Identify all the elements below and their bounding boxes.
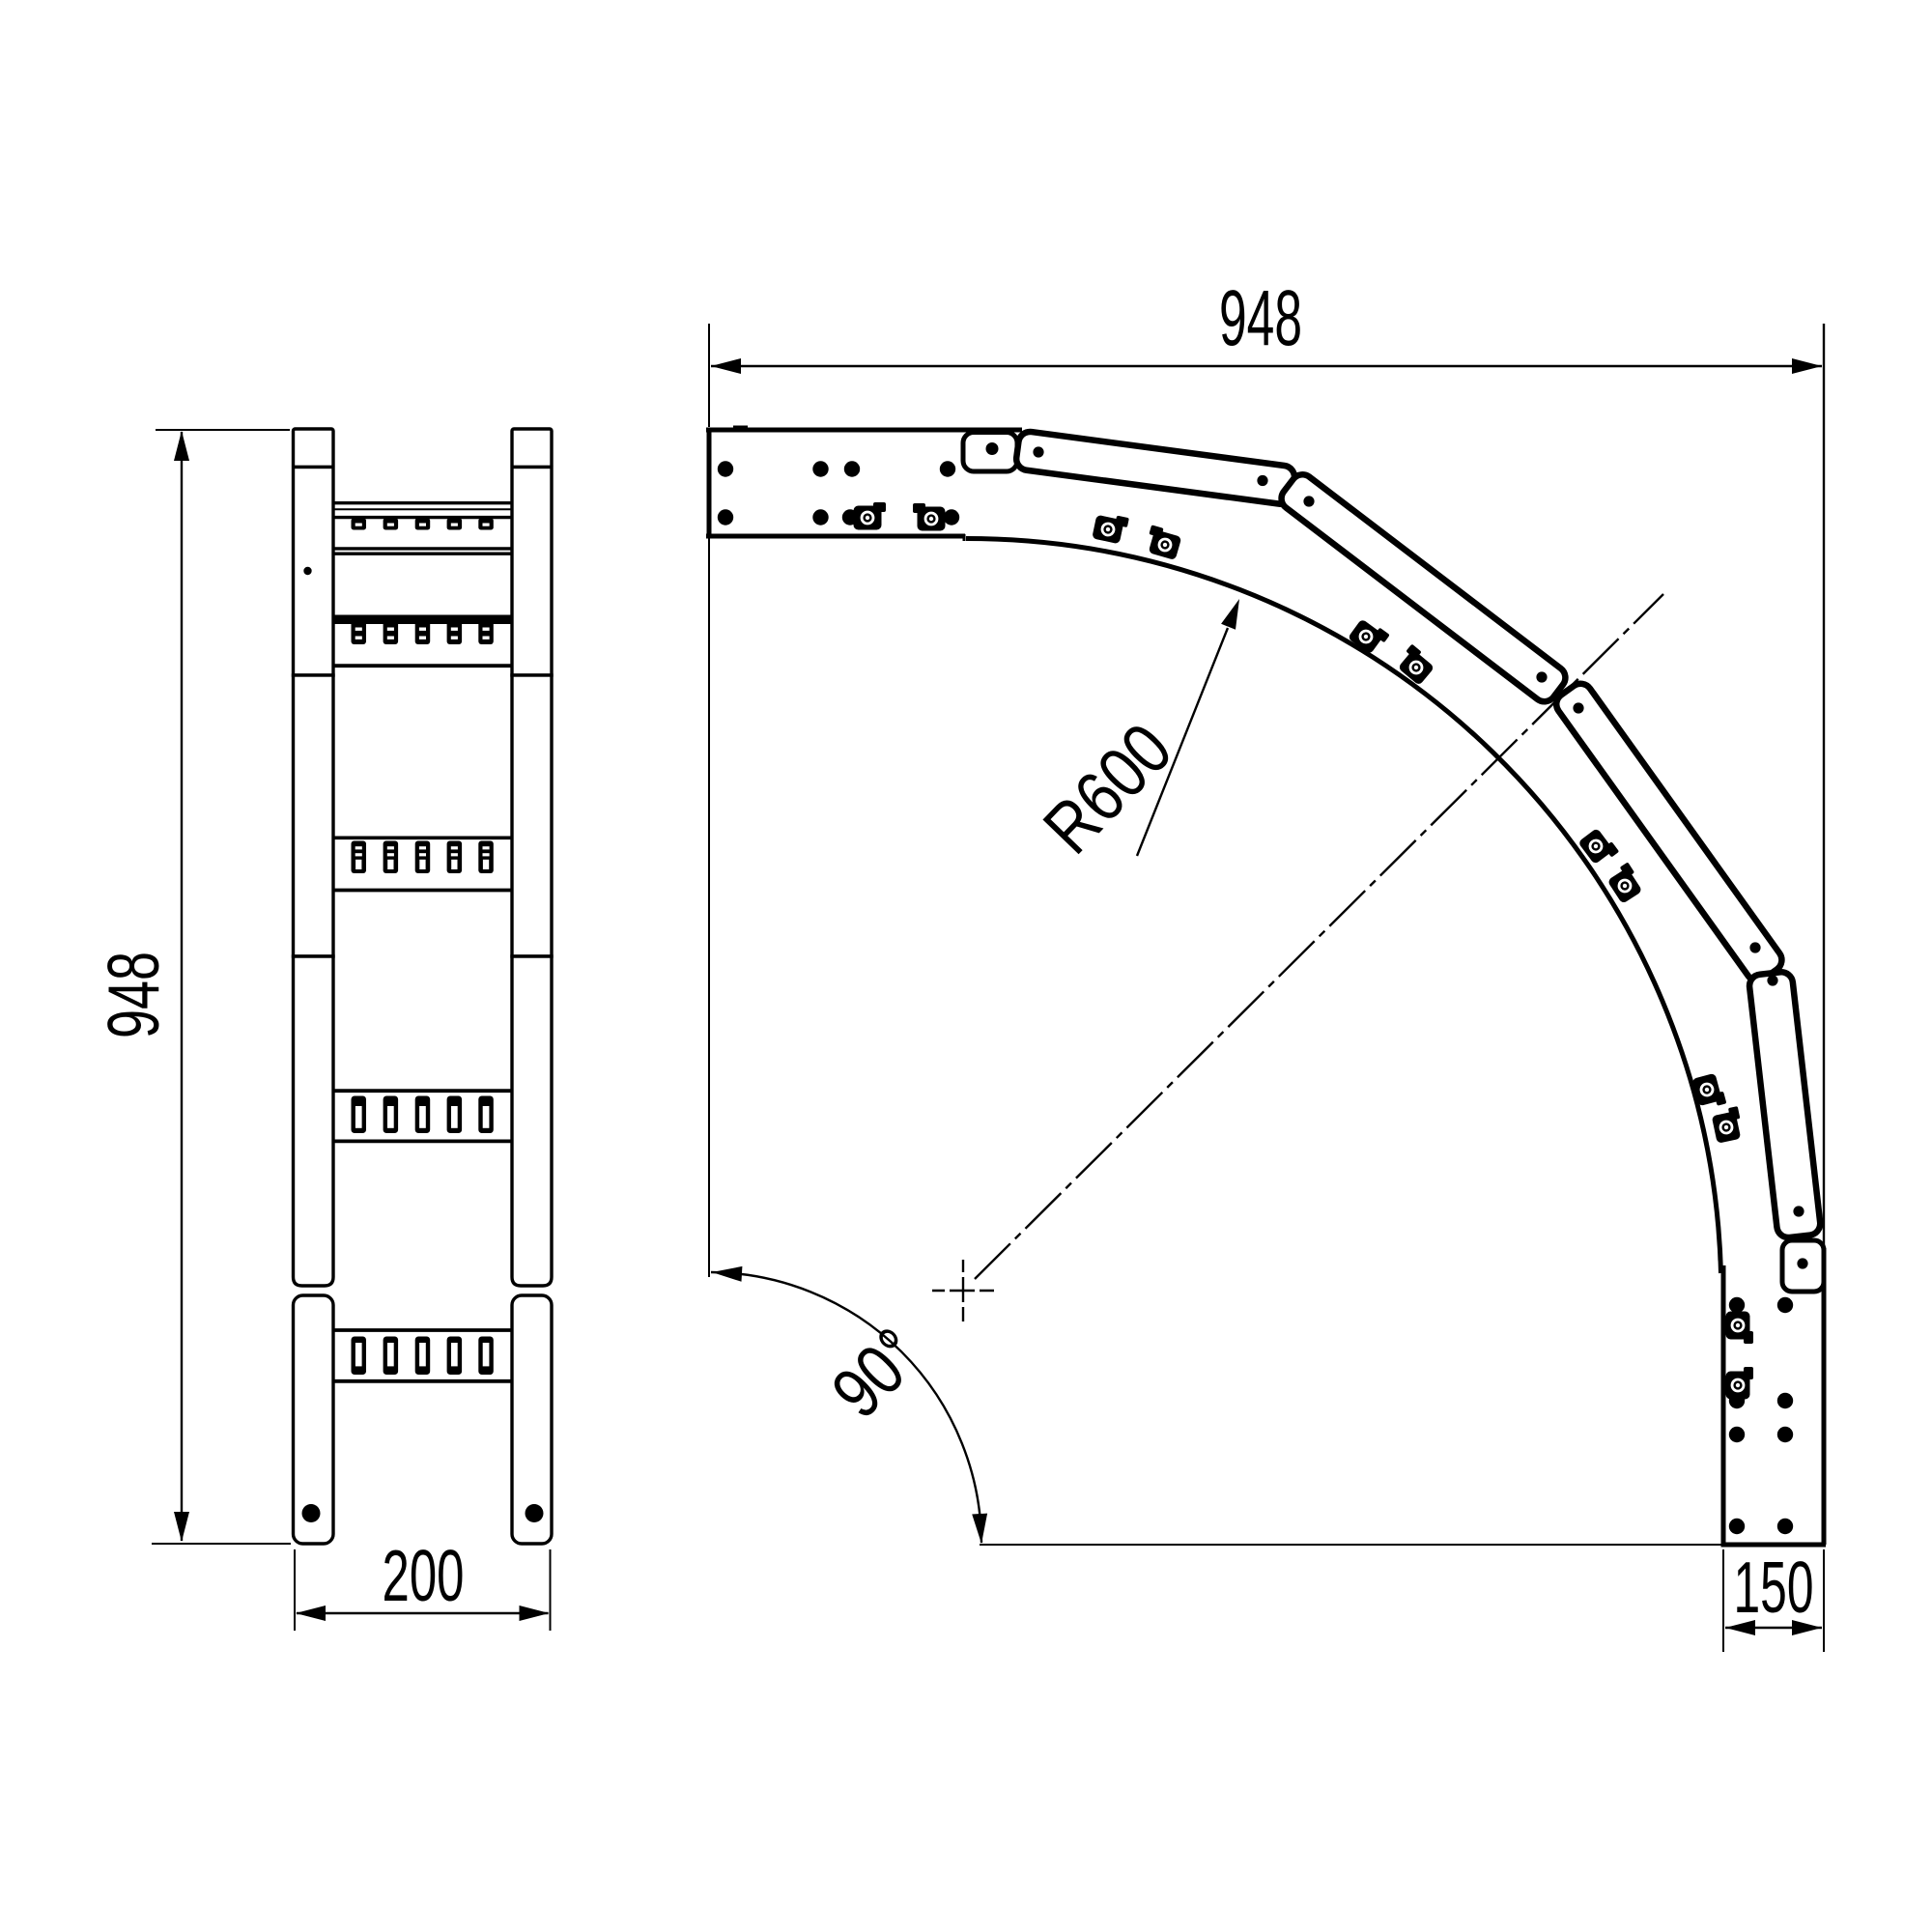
svg-text:948: 948 [1219,274,1302,362]
svg-text:200: 200 [383,1535,465,1616]
svg-text:948: 948 [93,952,174,1038]
svg-text:150: 150 [1734,1547,1814,1628]
